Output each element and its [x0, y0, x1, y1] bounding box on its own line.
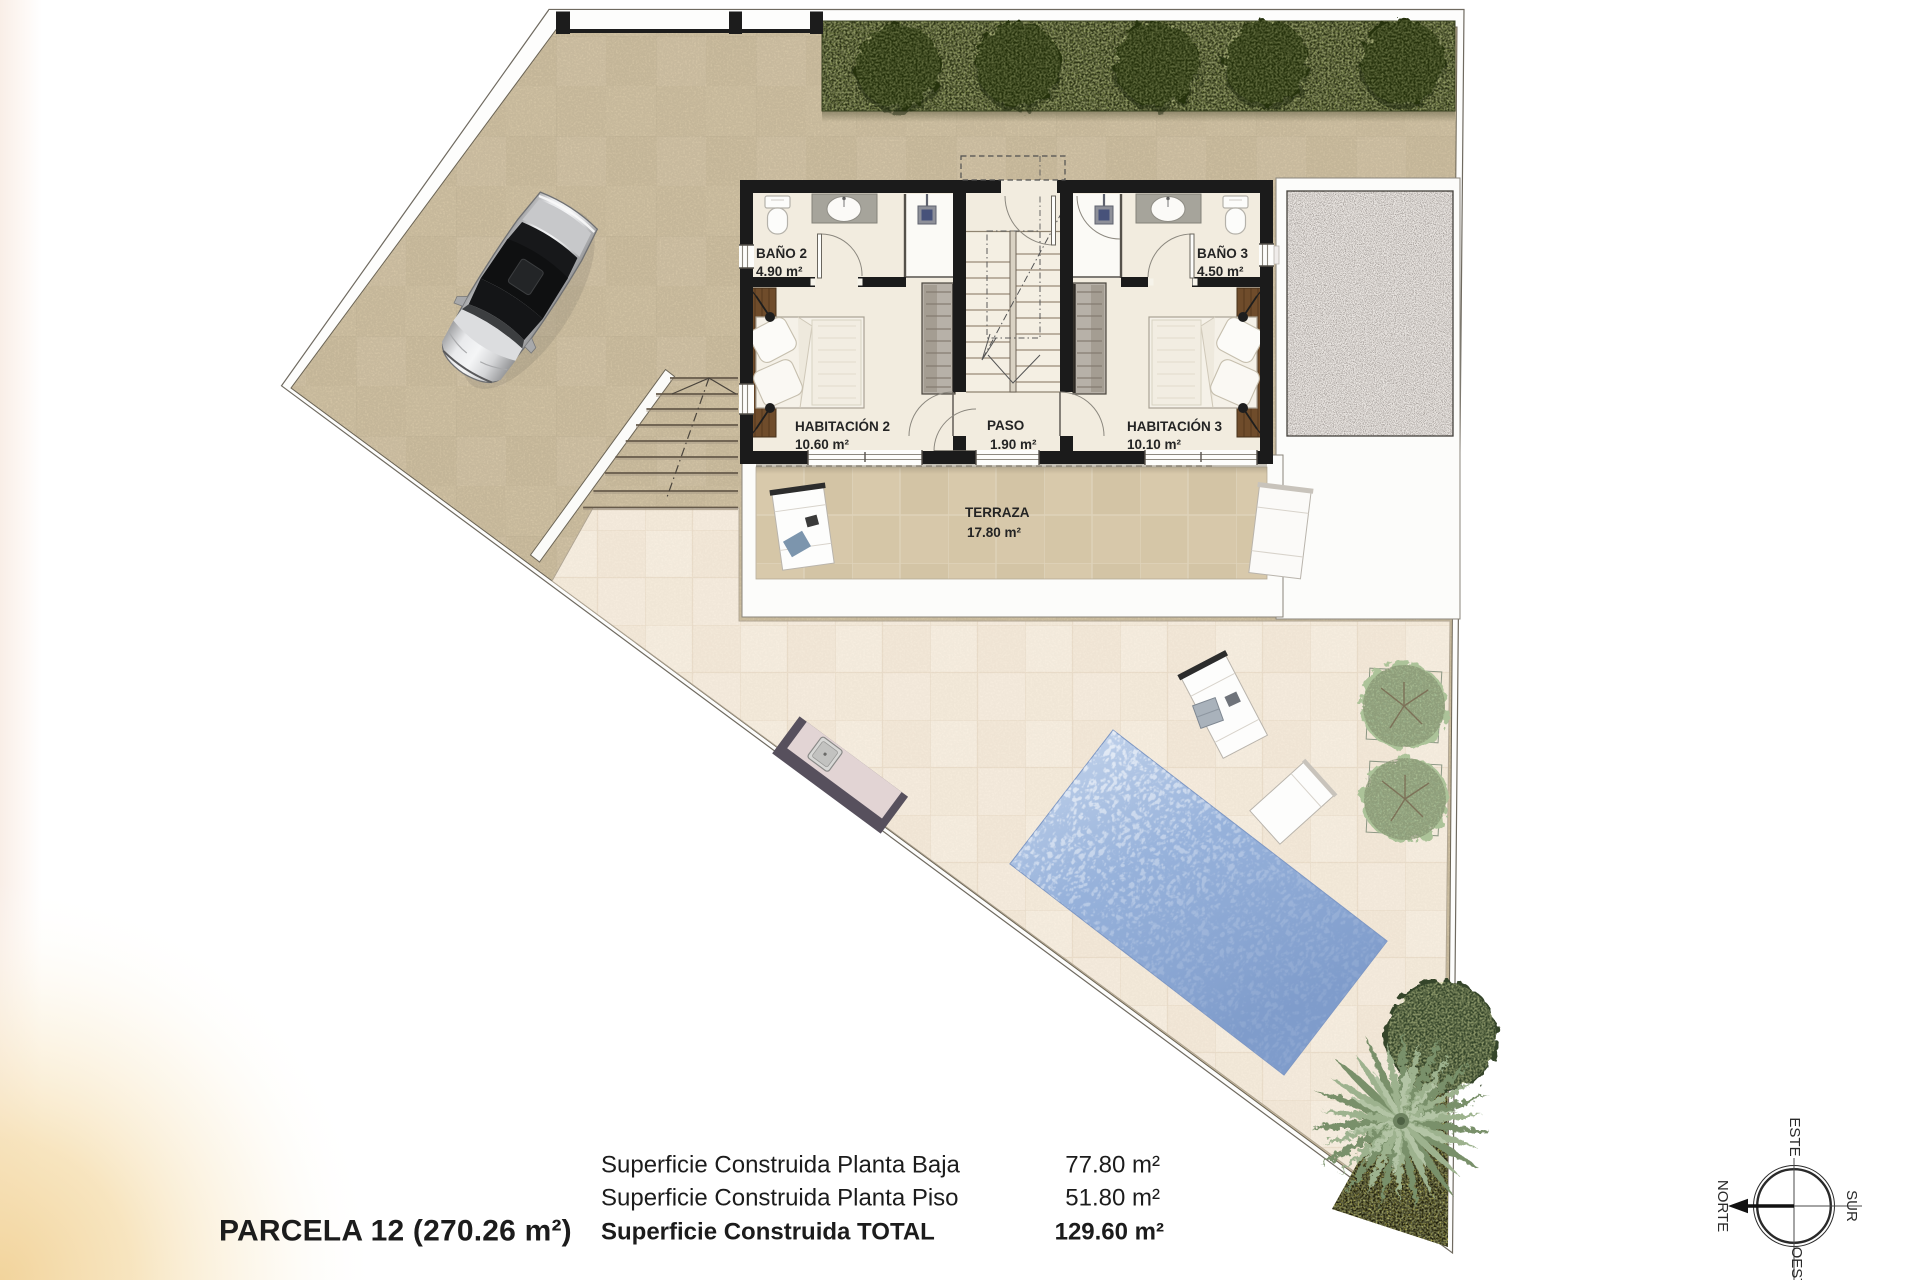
- svg-text:OESTE: OESTE: [1788, 1247, 1805, 1280]
- svg-text:Superficie Construida Planta B: Superficie Construida Planta Baja: [601, 1152, 961, 1179]
- svg-text:129.60 m²: 129.60 m²: [1055, 1218, 1164, 1245]
- svg-text:HABITACIÓN 3: HABITACIÓN 3: [1127, 419, 1222, 434]
- svg-text:PASO: PASO: [987, 418, 1024, 433]
- svg-text:1.90 m²: 1.90 m²: [990, 437, 1037, 452]
- svg-text:10.60 m²: 10.60 m²: [795, 437, 850, 452]
- svg-text:PARCELA 12 (270.26 m²): PARCELA 12 (270.26 m²): [219, 1214, 572, 1247]
- svg-text:BAÑO 2: BAÑO 2: [756, 246, 807, 261]
- svg-text:HABITACIÓN 2: HABITACIÓN 2: [795, 419, 890, 434]
- svg-text:ESTE: ESTE: [1786, 1117, 1803, 1156]
- svg-text:Superficie Construida TOTAL: Superficie Construida TOTAL: [601, 1218, 935, 1245]
- svg-text:NORTE: NORTE: [1714, 1180, 1731, 1232]
- svg-text:BAÑO 3: BAÑO 3: [1197, 246, 1248, 261]
- svg-text:17.80 m²: 17.80 m²: [967, 525, 1022, 540]
- svg-text:TERRAZA: TERRAZA: [965, 505, 1030, 520]
- svg-text:77.80 m²: 77.80 m²: [1065, 1152, 1160, 1179]
- svg-text:10.10 m²: 10.10 m²: [1127, 437, 1182, 452]
- svg-text:51.80 m²: 51.80 m²: [1065, 1185, 1160, 1212]
- svg-text:Superficie Construida Planta P: Superficie Construida Planta Piso: [601, 1185, 959, 1212]
- svg-text:4.90 m²: 4.90 m²: [756, 264, 803, 279]
- svg-text:4.50 m²: 4.50 m²: [1197, 264, 1244, 279]
- svg-text:SUR: SUR: [1843, 1190, 1860, 1222]
